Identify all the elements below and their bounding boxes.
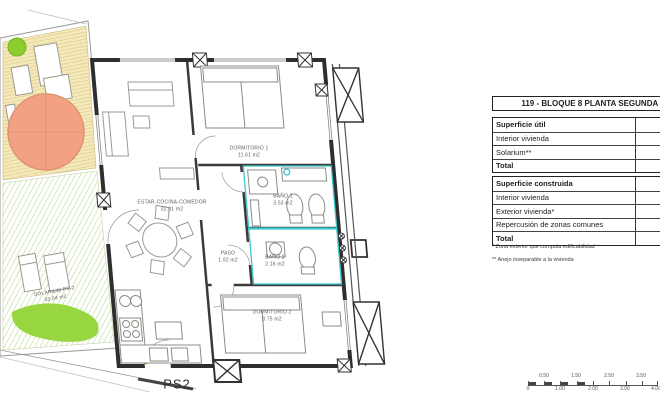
room-label-bano-2: BAÑO 2 2.16 m2 xyxy=(265,255,285,268)
dwelling-unit xyxy=(84,53,386,382)
table-header-row: Superficie construida xyxy=(493,177,660,191)
table-total-row: Total xyxy=(493,159,660,173)
valve-icons xyxy=(338,233,368,263)
plant-icon xyxy=(8,38,26,56)
scale-label: 0.50 xyxy=(539,373,549,379)
superficie-construida-table: Superficie construida Interior vivienda … xyxy=(492,176,660,246)
room-label-paso: PASO 1.92 m2 xyxy=(218,251,237,264)
floor-plan-sheet: DORMITORIO 1 11.61 m2 ESTAR-COCINA-COMED… xyxy=(0,0,660,410)
plan-id-label: PS2 xyxy=(163,377,191,392)
footnote-1: * Zona exterior que computa edificabilid… xyxy=(492,244,595,250)
boundary-line xyxy=(28,10,86,24)
scale-label: 3.00 xyxy=(620,386,630,392)
scale-label: 1.50 xyxy=(571,373,581,379)
room-label-dormitorio-2: DORMITORIO 2 8.75 m2 xyxy=(253,310,292,323)
room-label-estar-cocina-comedor: ESTAR-COCINA-COMEDOR 32.01 m2 xyxy=(137,200,206,213)
table-row: Exterior vivienda* xyxy=(493,204,660,218)
scale-label: 1.00 xyxy=(555,386,565,392)
table-header-row: Superficie útil xyxy=(493,118,660,132)
superficie-util-table: Superficie útil Interior vivienda Solari… xyxy=(492,117,660,173)
parasol-icon xyxy=(8,94,84,170)
room-label-bano-1: BAÑO 1 3.53 m2 xyxy=(273,194,293,207)
table-row: Interior vivienda xyxy=(493,132,660,146)
scale-label: 2.50 xyxy=(604,373,614,379)
scale-label: 3.50 xyxy=(636,373,646,379)
scale-label: 0 xyxy=(527,386,530,392)
footnote-2: ** Anejo inseparable a la vivienda xyxy=(492,257,574,263)
bed-dormitorio-1 xyxy=(201,66,284,128)
table-row: Solarium** xyxy=(493,145,660,159)
table-row: Interior vivienda xyxy=(493,191,660,205)
table-row: Repercusión de zonas comunes xyxy=(493,218,660,232)
room-label-dormitorio-1: DORMITORIO 1 11.61 m2 xyxy=(230,146,269,159)
scale-label: 4.00 xyxy=(651,386,660,392)
plan-title: 119 - BLOQUE 8 PLANTA SEGUNDA 2 xyxy=(492,96,660,111)
table-total-row: Total xyxy=(493,231,660,245)
scale-label: 2.00 xyxy=(588,386,598,392)
